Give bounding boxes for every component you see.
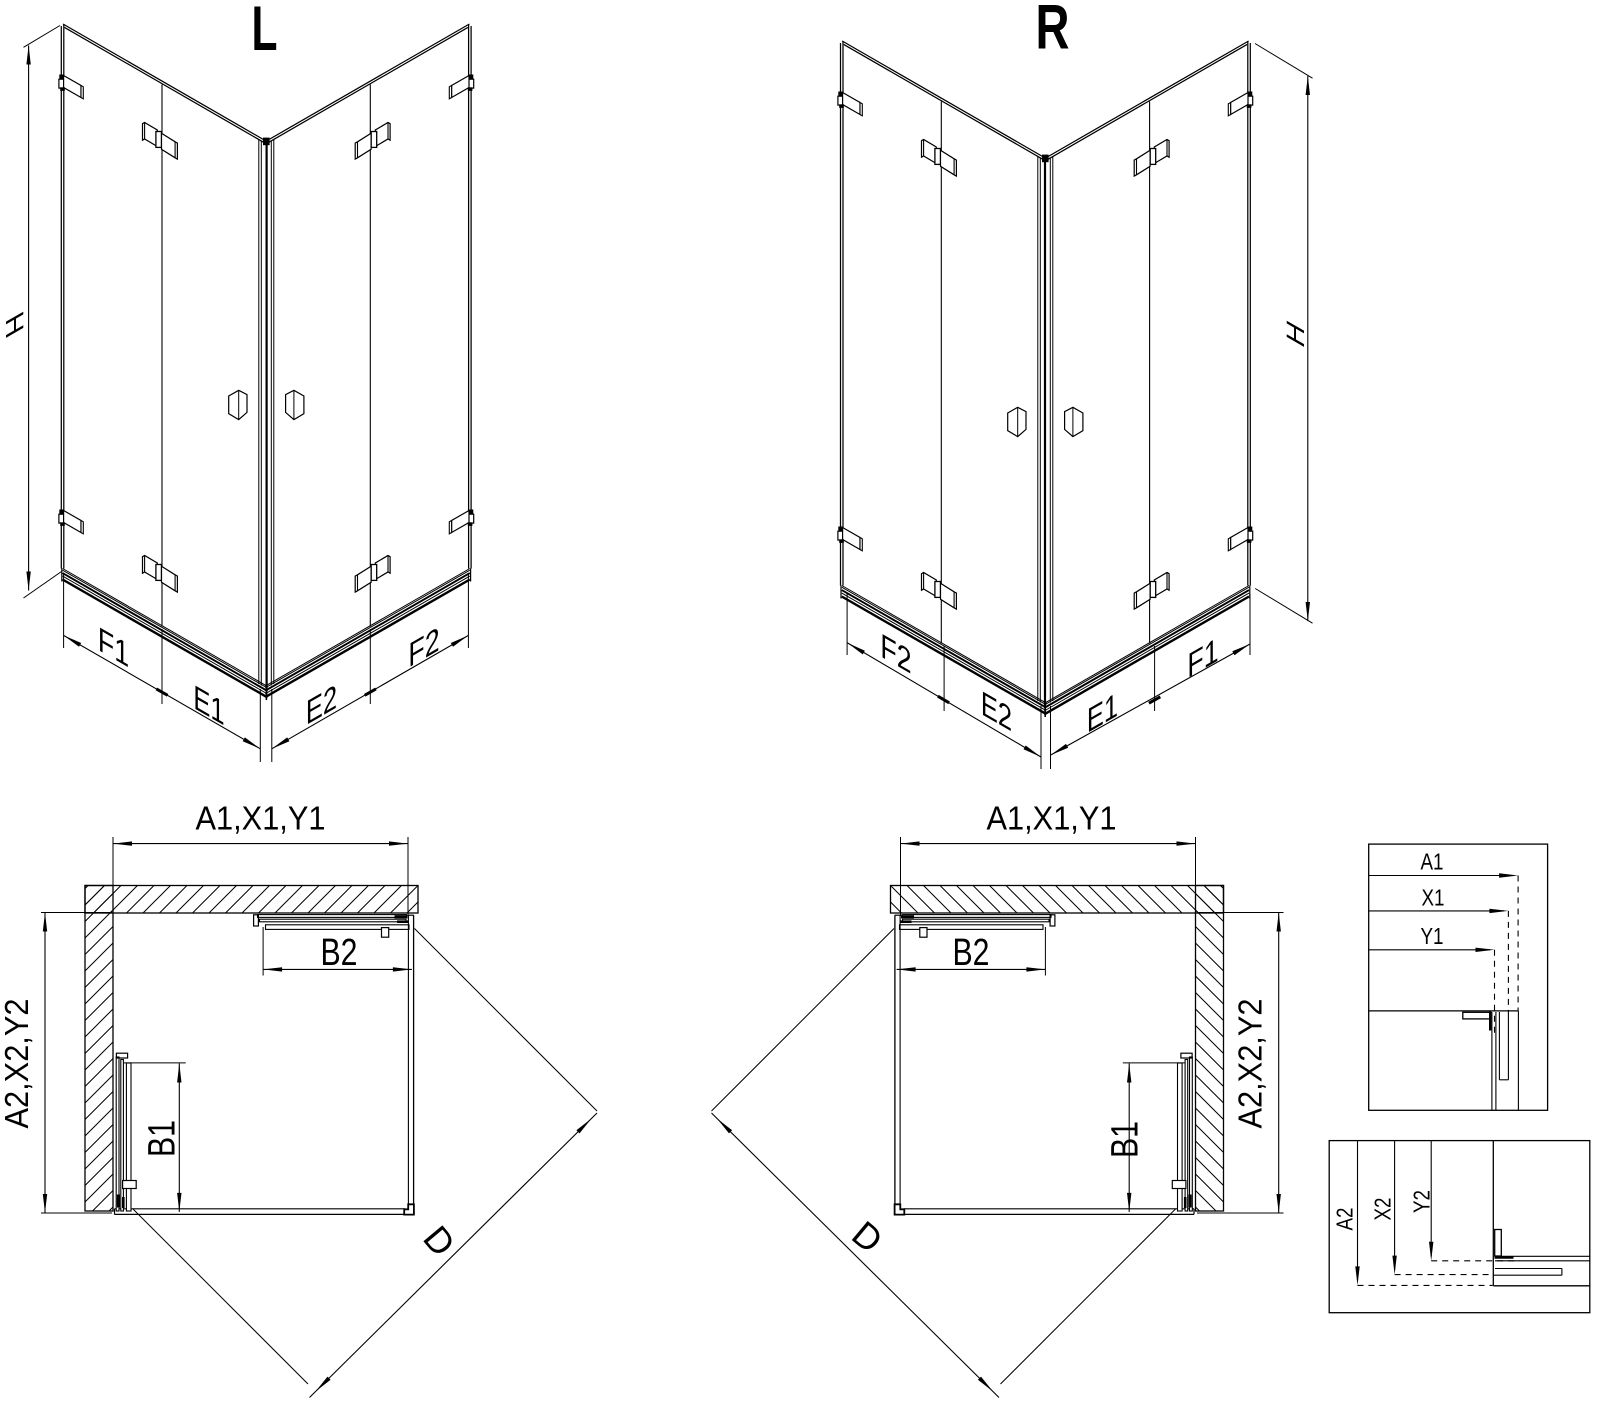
svg-text:R: R <box>1036 0 1070 63</box>
svg-text:A2: A2 <box>1332 1208 1358 1231</box>
svg-text:B1: B1 <box>142 1120 184 1157</box>
svg-text:A1,X1,Y1: A1,X1,Y1 <box>196 800 326 837</box>
svg-text:X1: X1 <box>1422 885 1445 911</box>
svg-text:A1: A1 <box>1421 849 1444 875</box>
svg-text:A2,X2,Y2: A2,X2,Y2 <box>0 999 35 1129</box>
svg-text:B1: B1 <box>1105 1121 1147 1158</box>
svg-text:Y1: Y1 <box>1421 923 1444 949</box>
svg-text:A1,X1,Y1: A1,X1,Y1 <box>987 800 1117 837</box>
svg-text:Y2: Y2 <box>1409 1190 1435 1213</box>
svg-text:L: L <box>252 0 278 64</box>
svg-text:B2: B2 <box>953 932 990 974</box>
svg-text:B2: B2 <box>321 932 358 974</box>
svg-text:A2,X2,Y2: A2,X2,Y2 <box>1232 999 1269 1129</box>
svg-text:X2: X2 <box>1370 1198 1396 1221</box>
